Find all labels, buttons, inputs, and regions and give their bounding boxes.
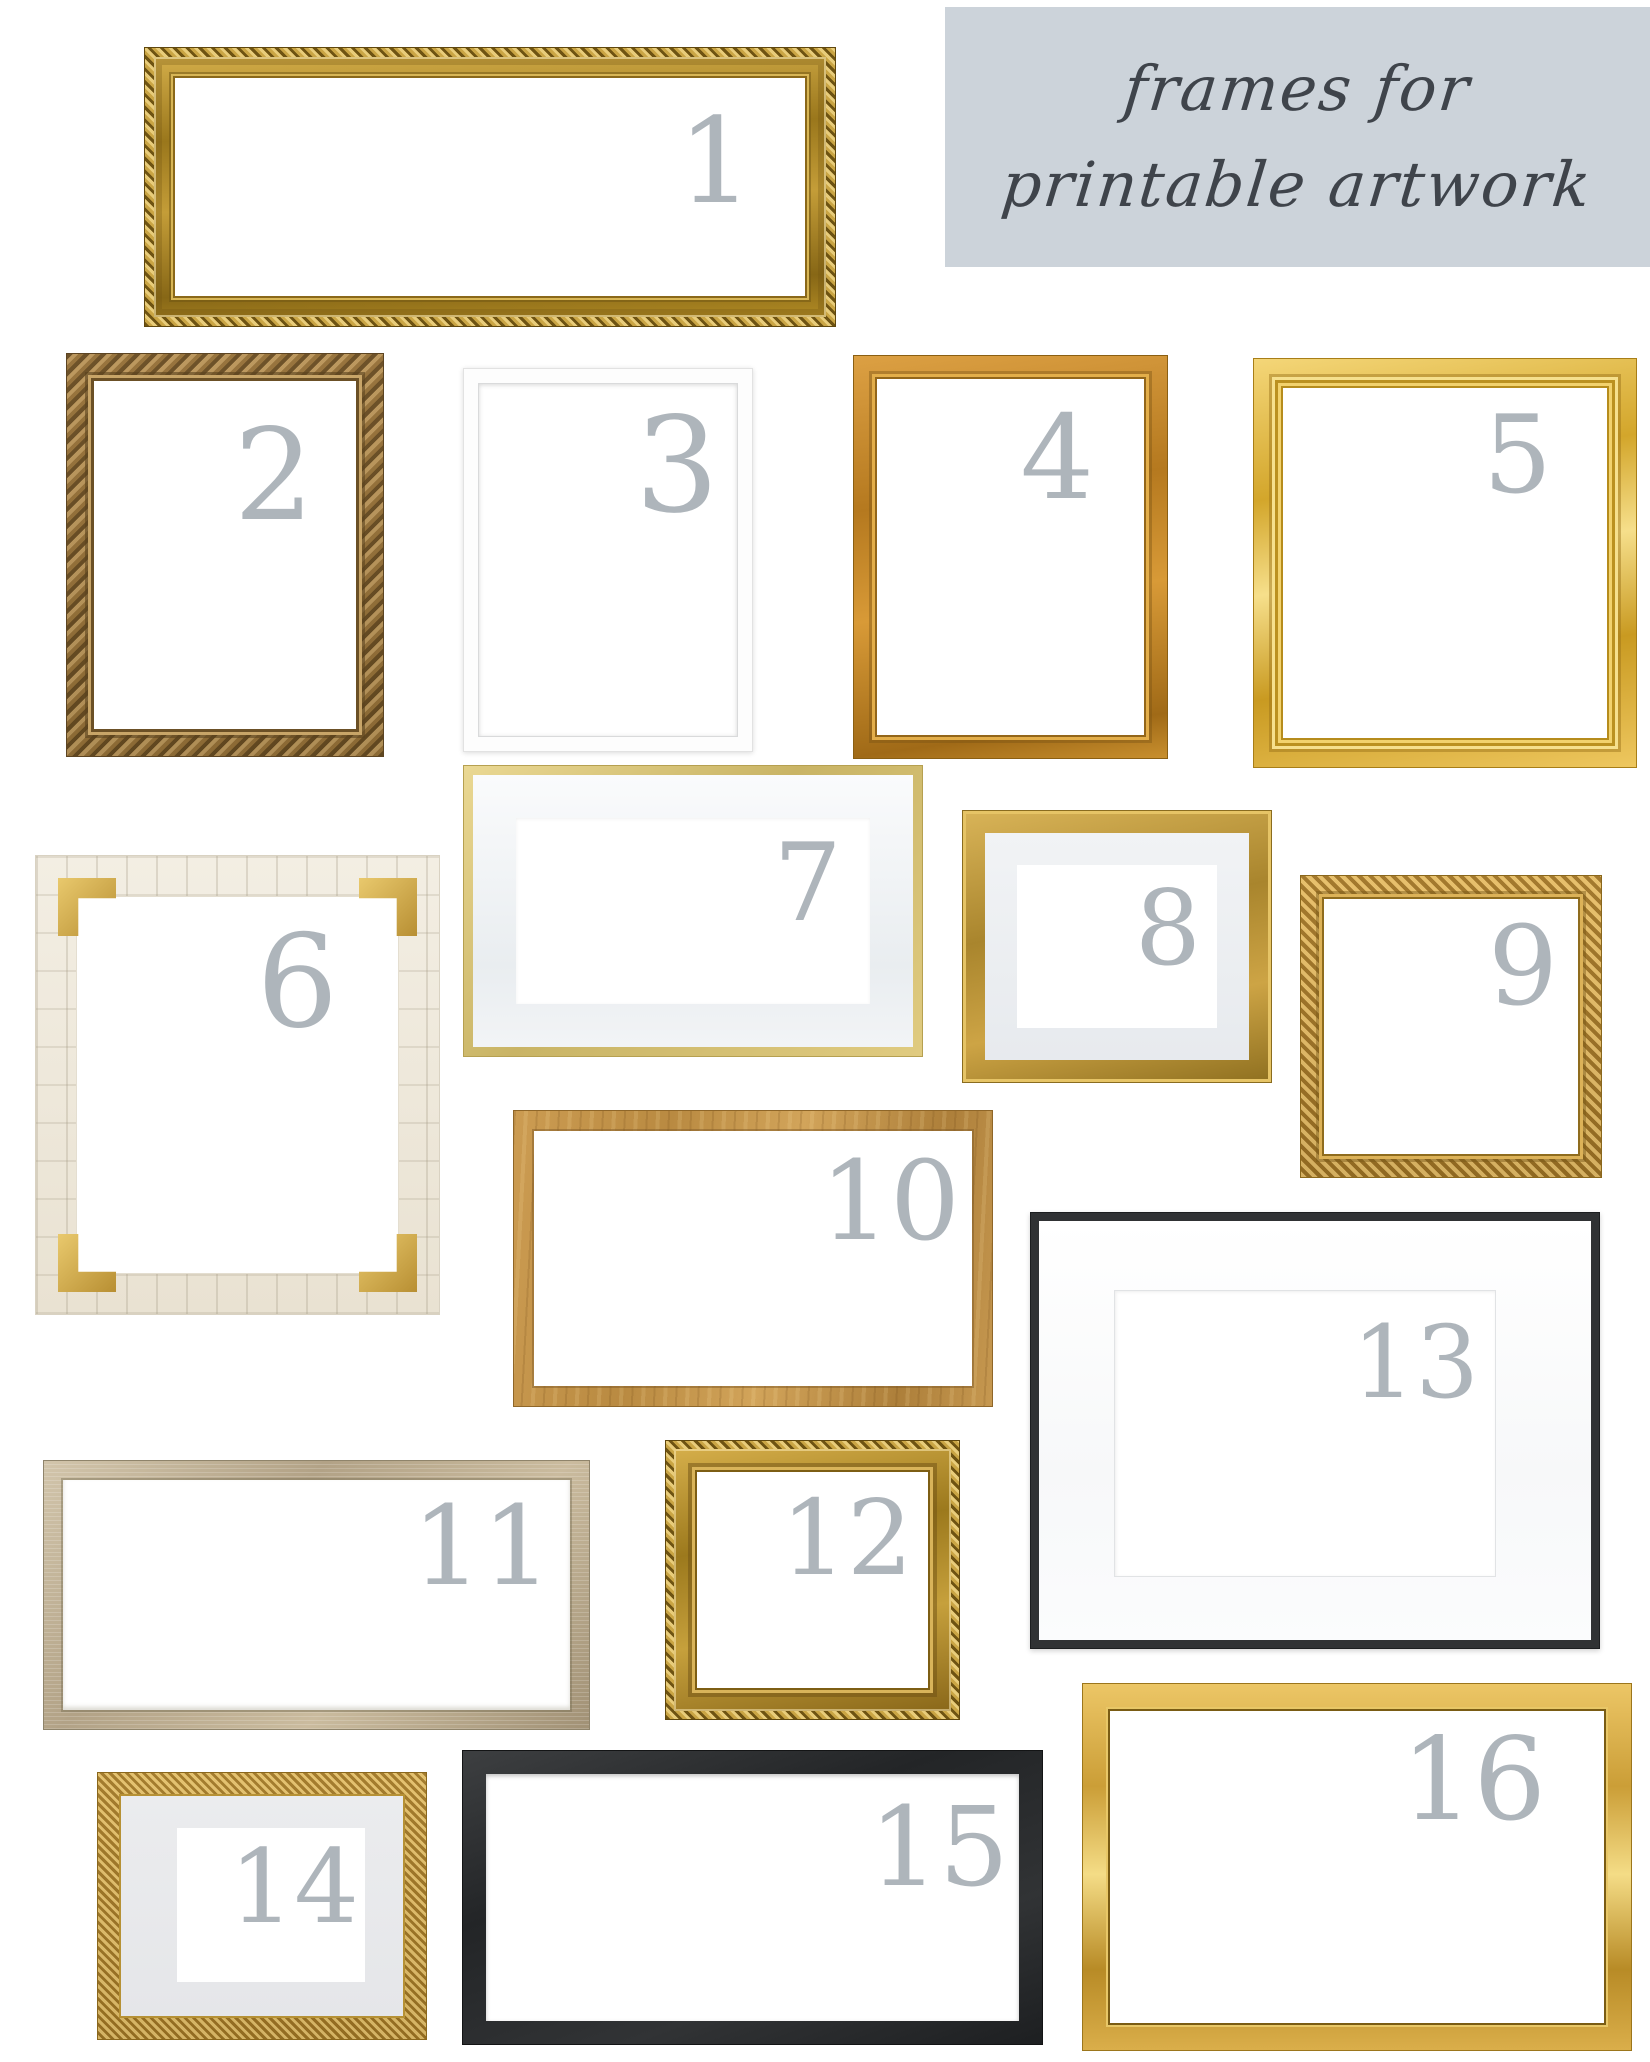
frame-8-opening: 8 xyxy=(1017,865,1217,1028)
frame-5: 5 xyxy=(1253,358,1637,768)
frame-10: 10 xyxy=(513,1110,993,1407)
frame-number: 9 xyxy=(1488,911,1558,1021)
title-line-2: printable artwork xyxy=(997,137,1597,233)
frame-8-mat: 8 xyxy=(985,833,1249,1060)
frame-3: 3 xyxy=(463,368,753,752)
frame-4: 4 xyxy=(853,355,1168,759)
frame-number: 2 xyxy=(234,413,314,539)
frame-number: 1 xyxy=(678,102,753,220)
frame-1: 1 xyxy=(144,47,836,327)
frame-number: 10 xyxy=(820,1146,960,1256)
frame-9: 9 xyxy=(1300,875,1602,1178)
frame-number: 6 xyxy=(257,919,338,1047)
frame-number: 14 xyxy=(229,1837,359,1939)
frame-2: 2 xyxy=(66,353,384,757)
frame-3-opening: 3 xyxy=(478,383,738,737)
frame-7: 7 xyxy=(463,765,923,1057)
frame-number: 16 xyxy=(1401,1723,1546,1837)
frame-12-opening: 12 xyxy=(697,1472,928,1688)
frame-8: 8 xyxy=(962,810,1272,1083)
title-banner: frames for printable artwork xyxy=(945,7,1650,267)
frame-1-opening: 1 xyxy=(175,78,805,296)
frame-6-opening: 6 xyxy=(76,896,399,1274)
frames-collage: frames for printable artwork 1 2 3 4 5 6 xyxy=(0,0,1650,2062)
frame-14: 14 xyxy=(97,1772,427,2040)
frame-16-opening: 16 xyxy=(1110,1711,1604,2023)
frame-number: 15 xyxy=(869,1792,1009,1902)
frame-12: 12 xyxy=(665,1440,960,1720)
title-line-1: frames for xyxy=(1119,41,1476,137)
frame-13: 13 xyxy=(1030,1212,1600,1649)
frame-15: 15 xyxy=(462,1750,1043,2045)
frame-number: 8 xyxy=(1135,876,1201,980)
frame-number: 4 xyxy=(1020,401,1094,517)
frame-number: 5 xyxy=(1483,402,1552,510)
frame-number: 11 xyxy=(412,1491,552,1601)
frame-13-opening: 13 xyxy=(1114,1290,1496,1577)
frame-4-opening: 4 xyxy=(877,379,1144,735)
frame-number: 7 xyxy=(773,830,842,938)
frame-number: 13 xyxy=(1352,1313,1479,1413)
frame-11-opening: 11 xyxy=(63,1480,570,1710)
frame-11: 11 xyxy=(43,1460,590,1730)
frame-6: 6 xyxy=(35,855,440,1315)
frame-2-opening: 2 xyxy=(94,381,356,729)
frame-15-opening: 15 xyxy=(486,1774,1019,2021)
frame-number: 12 xyxy=(781,1486,913,1590)
frame-10-opening: 10 xyxy=(534,1131,972,1386)
frame-9-opening: 9 xyxy=(1324,899,1578,1154)
frame-16: 16 xyxy=(1082,1683,1632,2051)
frame-14-opening: 14 xyxy=(177,1828,365,1982)
frame-5-opening: 5 xyxy=(1283,388,1607,738)
frame-13-mat: 13 xyxy=(1039,1221,1591,1640)
frame-number: 3 xyxy=(635,400,719,532)
frame-7-opening: 7 xyxy=(516,818,870,1004)
frame-7-mat: 7 xyxy=(473,775,913,1047)
frame-14-mat: 14 xyxy=(119,1794,405,2018)
